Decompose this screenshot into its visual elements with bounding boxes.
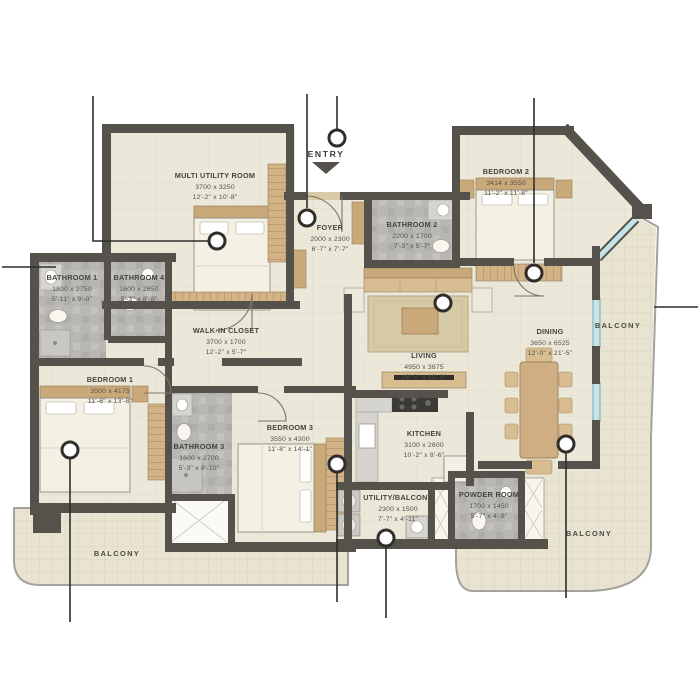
room-name: UTILITY/BALCONY: [363, 493, 432, 502]
room-dim-mm: 2200 x 1700: [392, 233, 432, 240]
room-name: BATHROOM 4: [113, 273, 165, 282]
room-dim-mm: 1600 x 2700: [179, 455, 219, 462]
room-dim-mm: 3550 x 4300: [270, 436, 310, 443]
room-name: WALK-IN CLOSET: [193, 326, 260, 335]
room-name: DINING: [536, 327, 563, 336]
room-label-bathroom3: BATHROOM 3 1600 x 2700 5'-3" x 8'-10": [173, 442, 224, 472]
room-dim-ft: 10'-2" x 8'-6": [404, 452, 445, 459]
room-name: FOYER: [317, 223, 344, 232]
callout-multi-utility[interactable]: [209, 233, 225, 249]
room-label-bathroom2: BATHROOM 2 2200 x 1700 7'-3" x 5'-7": [386, 220, 437, 250]
dining-table: [520, 362, 558, 458]
coffee-table: [402, 308, 438, 334]
room-dim-ft: 11'-6" x 13'-8": [88, 398, 133, 405]
room-dim-ft: 5'-3" x 8'-10": [179, 465, 220, 472]
floor-plan: ENTRY MULTI UTILITY ROOM 3700 x 3250 12'…: [0, 0, 700, 700]
room-dim-mm: 1600 x 2650: [119, 286, 159, 293]
wardrobe-bedroom2: [476, 264, 562, 281]
nightstand-bedroom1: [132, 386, 148, 402]
room-name: BEDROOM 1: [87, 375, 133, 384]
balcony-label-right: BALCONY: [595, 321, 641, 330]
room-label-bedroom3: BEDROOM 3 3550 x 4300 11'-8" x 14'-1": [267, 423, 313, 453]
wardrobe-bedroom1: [148, 404, 166, 480]
room-dim-ft: 12'-2" x 5'-7": [206, 349, 247, 356]
room-name: BEDROOM 2: [483, 167, 529, 176]
closet-hall-floor: [165, 300, 355, 396]
room-dim-mm: 2300 x 1500: [378, 506, 418, 513]
balcony-label-bottom-left: BALCONY: [94, 549, 140, 558]
room-dim-mm: 3700 x 1700: [206, 339, 246, 346]
callout-bedroom1[interactable]: [62, 442, 78, 458]
callout-utility[interactable]: [378, 530, 394, 546]
room-dim-ft: 5'-7" x 4'-9": [471, 513, 508, 520]
room-dim-ft: 7'-7" x 4'-11": [378, 516, 419, 523]
room-dim-ft: 6'-7" x 7'-7": [312, 246, 349, 253]
vent-shaft-right: [524, 478, 544, 540]
room-name: BATHROOM 1: [46, 273, 97, 282]
room-dim-ft: 12'-2" x 10'-8": [193, 194, 238, 201]
room-dim-mm: 1700 x 1450: [469, 503, 509, 510]
room-dim-mm: 4950 x 3875: [404, 364, 444, 371]
room-dim-ft: 16'-3" x 12'-9": [402, 374, 447, 381]
room-name: POWDER ROOM: [459, 490, 519, 499]
callout-dining[interactable]: [558, 436, 574, 452]
room-name: BEDROOM 3: [267, 423, 313, 432]
fridge: [444, 456, 468, 482]
room-name: MULTI UTILITY ROOM: [175, 171, 255, 180]
room-dim-mm: 3100 x 2600: [404, 442, 444, 449]
callout-bedroom3-wardrobe[interactable]: [329, 456, 345, 472]
room-dim-mm: 3700 x 3250: [195, 184, 235, 191]
callout-bedroom2-wardrobe[interactable]: [526, 265, 542, 281]
room-dim-ft: 11'-2" x 11'-8": [484, 190, 528, 197]
balcony-label-bottom-right: BALCONY: [566, 529, 612, 538]
room-dim-mm: 1800 x 2750: [52, 286, 92, 293]
room-dim-mm: 3500 x 4175: [90, 388, 130, 395]
room-dim-ft: 5'-3" x 8'-8": [121, 296, 158, 303]
room-dim-ft: 5'-11" x 9'-0": [52, 296, 93, 303]
callout-living[interactable]: [435, 295, 451, 311]
room-dim-mm: 3650 x 6525: [530, 340, 570, 347]
kitchen-sink: [359, 424, 375, 448]
room-dim-ft: 12'-0" x 21'-5": [528, 350, 573, 357]
room-label-bedroom1: BEDROOM 1 3500 x 4175 11'-6" x 13'-8": [87, 375, 133, 405]
wardrobe-multi-utility: [268, 164, 286, 262]
room-label-kitchen: KITCHEN 3100 x 2600 10'-2" x 8'-6": [404, 429, 445, 459]
room-dim-mm: 3414 x 3550: [486, 180, 526, 187]
room-dim-ft: 7'-3" x 5'-7": [394, 243, 431, 250]
room-name: BATHROOM 3: [173, 442, 224, 451]
entry-label: ENTRY: [308, 149, 345, 159]
room-label-bedroom2: BEDROOM 2 3414 x 3550 11'-2" x 11'-8": [483, 167, 529, 197]
lift-shaft: [168, 496, 230, 545]
room-dim-mm: 2000 x 2300: [310, 236, 350, 243]
nightstand-bedroom2-right: [556, 180, 572, 198]
room-dim-ft: 11'-8" x 14'-1": [268, 446, 313, 453]
callout-foyer[interactable]: [299, 210, 315, 226]
room-name: KITCHEN: [407, 429, 441, 438]
foyer-bench: [292, 250, 306, 288]
room-label-bathroom1: BATHROOM 1 1800 x 2750 5'-11" x 9'-0": [46, 273, 97, 303]
room-name: BATHROOM 2: [386, 220, 437, 229]
room-name: LIVING: [411, 351, 437, 360]
entry-arrow-icon: [312, 162, 340, 174]
floor-plan-canvas: ENTRY MULTI UTILITY ROOM 3700 x 3250 12'…: [0, 0, 700, 700]
callout-entry[interactable]: [329, 130, 345, 146]
bed-bedroom3: [238, 444, 326, 532]
